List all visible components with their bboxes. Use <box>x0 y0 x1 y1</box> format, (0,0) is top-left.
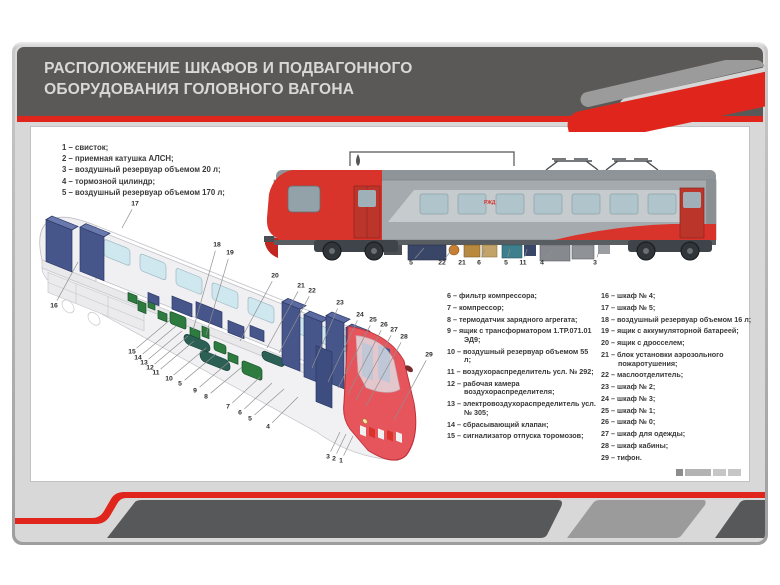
legend-item: 16 – шкаф № 4; <box>601 292 753 301</box>
legend-item: 27 – шкаф для одежды; <box>601 430 753 439</box>
title-line-2: ОБОРУДОВАНИЯ ГОЛОВНОГО ВАГОНА <box>44 79 740 100</box>
footer-gray-band <box>567 500 706 538</box>
legend-item: 21 – блок установки аэрозольного пожарот… <box>601 351 753 368</box>
legend-item: 7 – компрессор; <box>447 304 597 313</box>
cutaway-illustration <box>32 198 462 488</box>
footer-watermark <box>676 469 741 476</box>
legend-item: 3 – воздушный резервуар объемом 20 л; <box>62 164 277 175</box>
watermark-box <box>728 469 741 476</box>
legend-item: 24 – шкаф № 3; <box>601 395 753 404</box>
legend-column-left: 1 – свисток;2 – приемная катушка АЛСН;3 … <box>62 142 277 198</box>
legend-item: 15 – сигнализатор отпуска торомозов; <box>447 432 597 441</box>
legend-item: 28 – шкаф кабины; <box>601 442 753 451</box>
legend-item: 18 – воздушный резервуар объемом 16 л; <box>601 316 753 325</box>
legend-item: 20 – ящик с дросселем; <box>601 339 753 348</box>
legend-item: 19 – ящик с аккумуляторной батареей; <box>601 327 753 336</box>
watermark-box <box>713 469 726 476</box>
watermark-text-block <box>685 469 711 476</box>
header-accent-line <box>17 116 763 122</box>
footer-decor <box>15 486 765 542</box>
roof-antenna <box>350 152 514 166</box>
legend-item: 11 – воздухораспределитель усл. № 292; <box>447 368 597 377</box>
poster-title: РАСПОЛОЖЕНИЕ ШКАФОВ И ПОДВАГОННОГО ОБОРУ… <box>17 47 741 100</box>
legend-item: 2 – приемная катушка АЛСН; <box>62 153 277 164</box>
legend-item: 13 – электровоздухораспределитель усл. №… <box>447 400 597 417</box>
rear-door-window <box>683 192 701 208</box>
legend-item: 1 – свисток; <box>62 142 277 153</box>
footer-corner-band <box>715 500 765 538</box>
legend-item: 12 – рабочая камера воздухораспределител… <box>447 380 597 397</box>
header-band: РАСПОЛОЖЕНИЕ ШКАФОВ И ПОДВАГОННОГО ОБОРУ… <box>17 47 763 116</box>
legend-item: 5 – воздушный резервуар объемом 170 л; <box>62 187 277 198</box>
legend-item: 22 – маслоотделитель; <box>601 371 753 380</box>
poster-page: РАСПОЛОЖЕНИЕ ШКАФОВ И ПОДВАГОННОГО ОБОРУ… <box>0 0 780 585</box>
legend-item: 4 – тормозной цилиндр; <box>62 176 277 187</box>
legend-item: 23 – шкаф № 2; <box>601 383 753 392</box>
rzd-logo: РЖД <box>484 200 496 206</box>
legend-item: 8 – термодатчик зарядного агрегата; <box>447 316 597 325</box>
legend-item: 17 – шкаф № 5; <box>601 304 753 313</box>
legend-column-right: 16 – шкаф № 4;17 – шкаф № 5;18 – воздушн… <box>601 292 753 466</box>
pantograph-icon <box>546 159 658 170</box>
legend-item: 6 – фильтр компрессора; <box>447 292 597 301</box>
legend-item: 10 – воздушный резервуар объемом 55 л; <box>447 348 597 365</box>
legend-item: 14 – сбрасывающий клапан; <box>447 421 597 430</box>
legend-item: 9 – ящик с трансформатором 1.ТР.071.01 Э… <box>447 327 597 344</box>
legend-column-middle: 6 – фильтр компрессора;7 – компрессор;8 … <box>447 292 597 444</box>
title-line-1: РАСПОЛОЖЕНИЕ ШКАФОВ И ПОДВАГОННОГО <box>44 58 740 79</box>
legend-item: 25 – шкаф № 1; <box>601 407 753 416</box>
watermark-glyph <box>676 469 683 476</box>
legend-item: 29 – тифон. <box>601 454 753 463</box>
footer-dark-band <box>107 500 562 538</box>
legend-item: 26 – шкаф № 0; <box>601 418 753 427</box>
antenna-insulator <box>356 154 360 166</box>
